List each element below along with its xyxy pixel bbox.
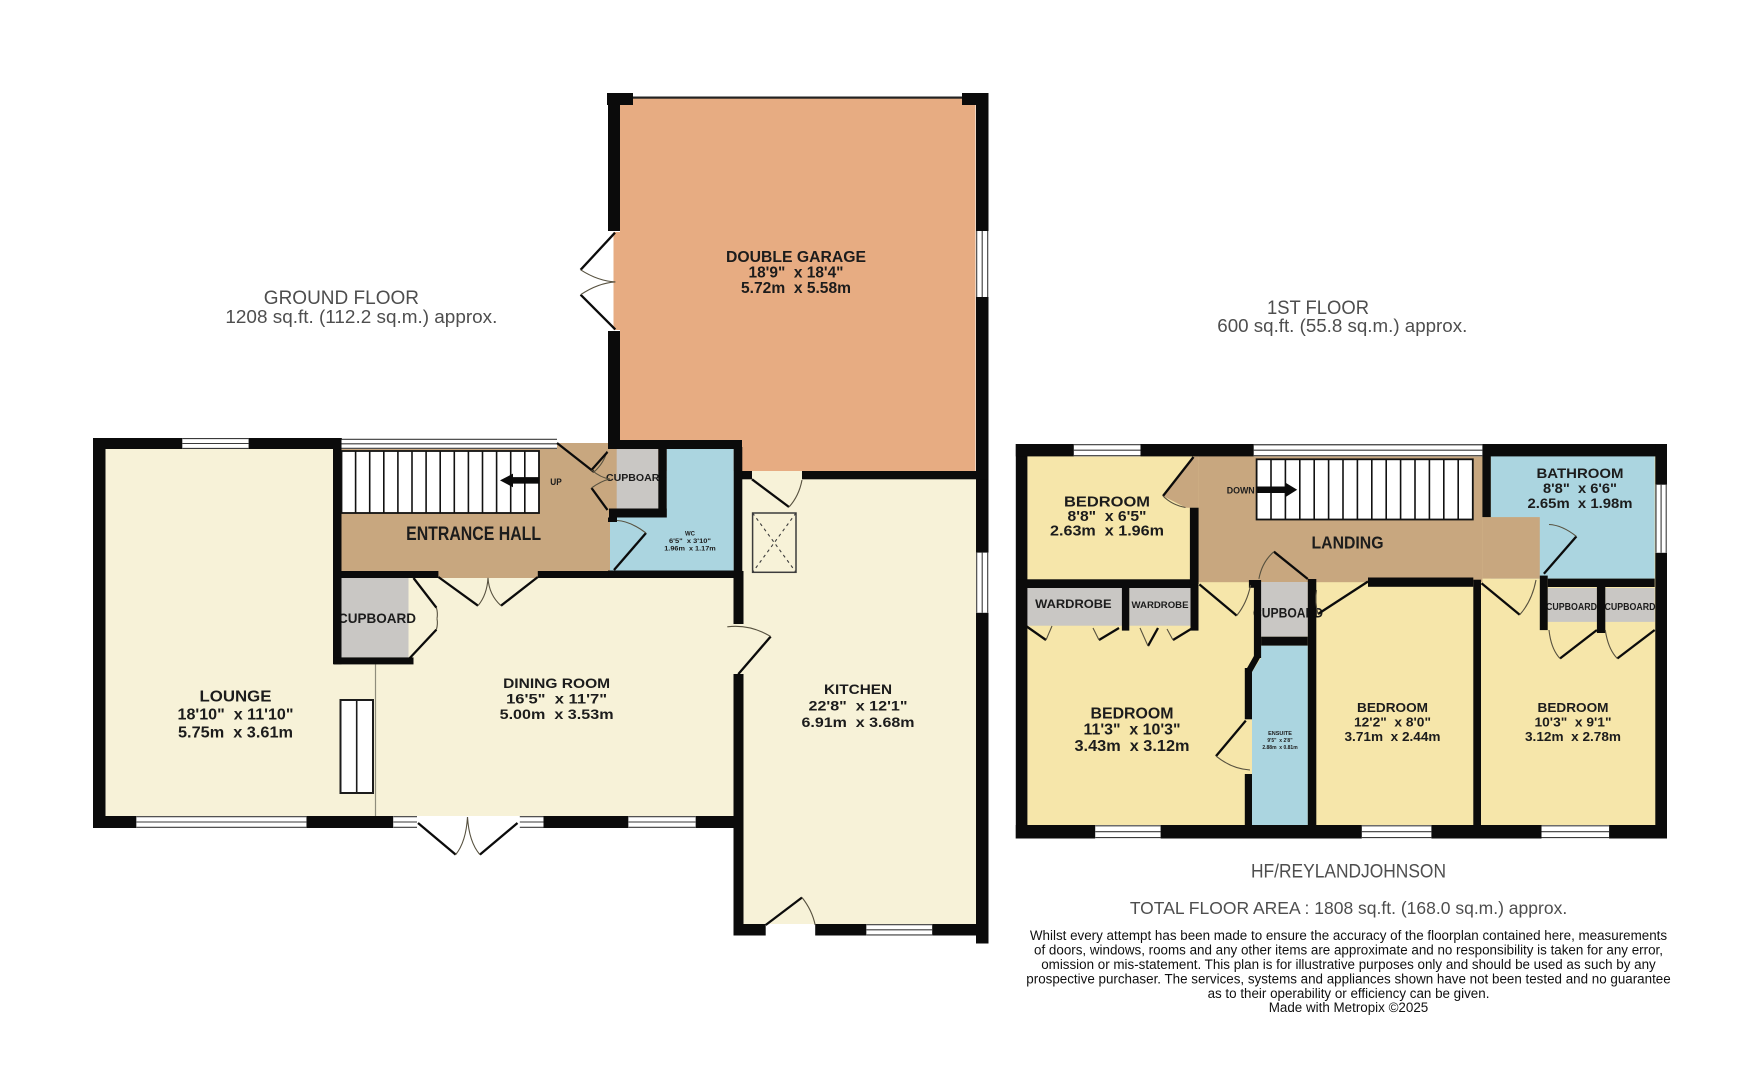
svg-text:11'3" x 10'3": 11'3" x 10'3"	[1084, 722, 1181, 739]
svg-text:5.72m x 5.58m: 5.72m x 5.58m	[741, 280, 851, 297]
svg-text:LANDING: LANDING	[1312, 533, 1384, 553]
svg-text:Whilst every attempt has been: Whilst every attempt has been made to en…	[1030, 928, 1667, 943]
svg-text:WARDROBE: WARDROBE	[1132, 600, 1189, 610]
svg-text:2.63m x 1.96m: 2.63m x 1.96m	[1050, 524, 1164, 540]
svg-text:3.12m x 2.78m: 3.12m x 2.78m	[1525, 729, 1621, 744]
svg-text:BEDROOM: BEDROOM	[1357, 700, 1428, 715]
svg-text:DOWN: DOWN	[1227, 486, 1255, 497]
svg-text:1.96m x 1.17m: 1.96m x 1.17m	[664, 547, 716, 553]
svg-text:3.71m x 2.44m: 3.71m x 2.44m	[1345, 729, 1441, 744]
svg-text:10'3" x 9'1": 10'3" x 9'1"	[1535, 715, 1612, 730]
svg-text:CUPBOARD: CUPBOARD	[606, 472, 667, 484]
svg-text:CUPBOARD: CUPBOARD	[1546, 602, 1597, 613]
svg-text:ENSUITE: ENSUITE	[1268, 731, 1292, 737]
svg-text:UP: UP	[550, 477, 562, 488]
svg-text:ENTRANCE HALL: ENTRANCE HALL	[406, 524, 541, 545]
svg-text:12'2" x 8'0": 12'2" x 8'0"	[1354, 715, 1431, 730]
svg-text:WARDROBE: WARDROBE	[1035, 599, 1112, 611]
svg-text:5.00m x 3.53m: 5.00m x 3.53m	[500, 707, 614, 722]
svg-text:BEDROOM: BEDROOM	[1091, 706, 1174, 723]
svg-text:LOUNGE: LOUNGE	[200, 689, 272, 706]
svg-text:6'5" x 3'10": 6'5" x 3'10"	[669, 539, 711, 545]
svg-text:Made with Metropix ©2025: Made with Metropix ©2025	[1269, 1000, 1428, 1015]
svg-text:of doors, windows, rooms and a: of doors, windows, rooms and any other i…	[1034, 943, 1663, 958]
svg-text:2.88m x 0.81m: 2.88m x 0.81m	[1262, 745, 1298, 751]
svg-text:5.75m x 3.61m: 5.75m x 3.61m	[178, 725, 293, 742]
svg-text:DOUBLE GARAGE: DOUBLE GARAGE	[726, 249, 866, 266]
svg-text:1208 sq.ft. (112.2 sq.m.) appr: 1208 sq.ft. (112.2 sq.m.) approx.	[225, 306, 497, 327]
svg-text:as to their operability or eff: as to their operability or efficiency ca…	[1208, 986, 1490, 1001]
svg-text:22'8" x 12'1": 22'8" x 12'1"	[809, 698, 908, 714]
svg-text:3.43m x 3.12m: 3.43m x 3.12m	[1075, 738, 1190, 755]
svg-text:16'5" x 11'7": 16'5" x 11'7"	[506, 692, 607, 707]
svg-text:HF/REYLANDJOHNSON: HF/REYLANDJOHNSON	[1251, 861, 1446, 883]
svg-text:9'5" x 2'8": 9'5" x 2'8"	[1267, 738, 1293, 744]
svg-text:KITCHEN: KITCHEN	[824, 681, 892, 697]
svg-text:CUPBOARD: CUPBOARD	[1605, 602, 1656, 613]
svg-text:8'8" x 6'6": 8'8" x 6'6"	[1543, 480, 1617, 496]
svg-text:CUPBOARD: CUPBOARD	[338, 610, 416, 626]
svg-text:2.65m x 1.98m: 2.65m x 1.98m	[1528, 495, 1633, 511]
svg-text:prospective purchaser. The ser: prospective purchaser. The services, sys…	[1026, 972, 1670, 987]
svg-text:WC: WC	[685, 532, 696, 538]
svg-text:6.91m x 3.68m: 6.91m x 3.68m	[802, 714, 915, 730]
svg-text:TOTAL FLOOR AREA : 1808 sq.ft.: TOTAL FLOOR AREA : 1808 sq.ft. (168.0 sq…	[1130, 898, 1567, 918]
svg-text:DINING ROOM: DINING ROOM	[503, 676, 610, 691]
svg-text:omission or mis-statement. Thi: omission or mis-statement. This plan is …	[1041, 957, 1656, 972]
svg-text:600 sq.ft. (55.8 sq.m.) approx: 600 sq.ft. (55.8 sq.m.) approx.	[1217, 315, 1467, 336]
svg-text:18'9" x 18'4": 18'9" x 18'4"	[749, 265, 844, 282]
svg-text:BATHROOM: BATHROOM	[1537, 465, 1624, 481]
svg-text:BEDROOM: BEDROOM	[1538, 700, 1609, 715]
svg-text:18'10" x 11'10": 18'10" x 11'10"	[178, 707, 294, 724]
